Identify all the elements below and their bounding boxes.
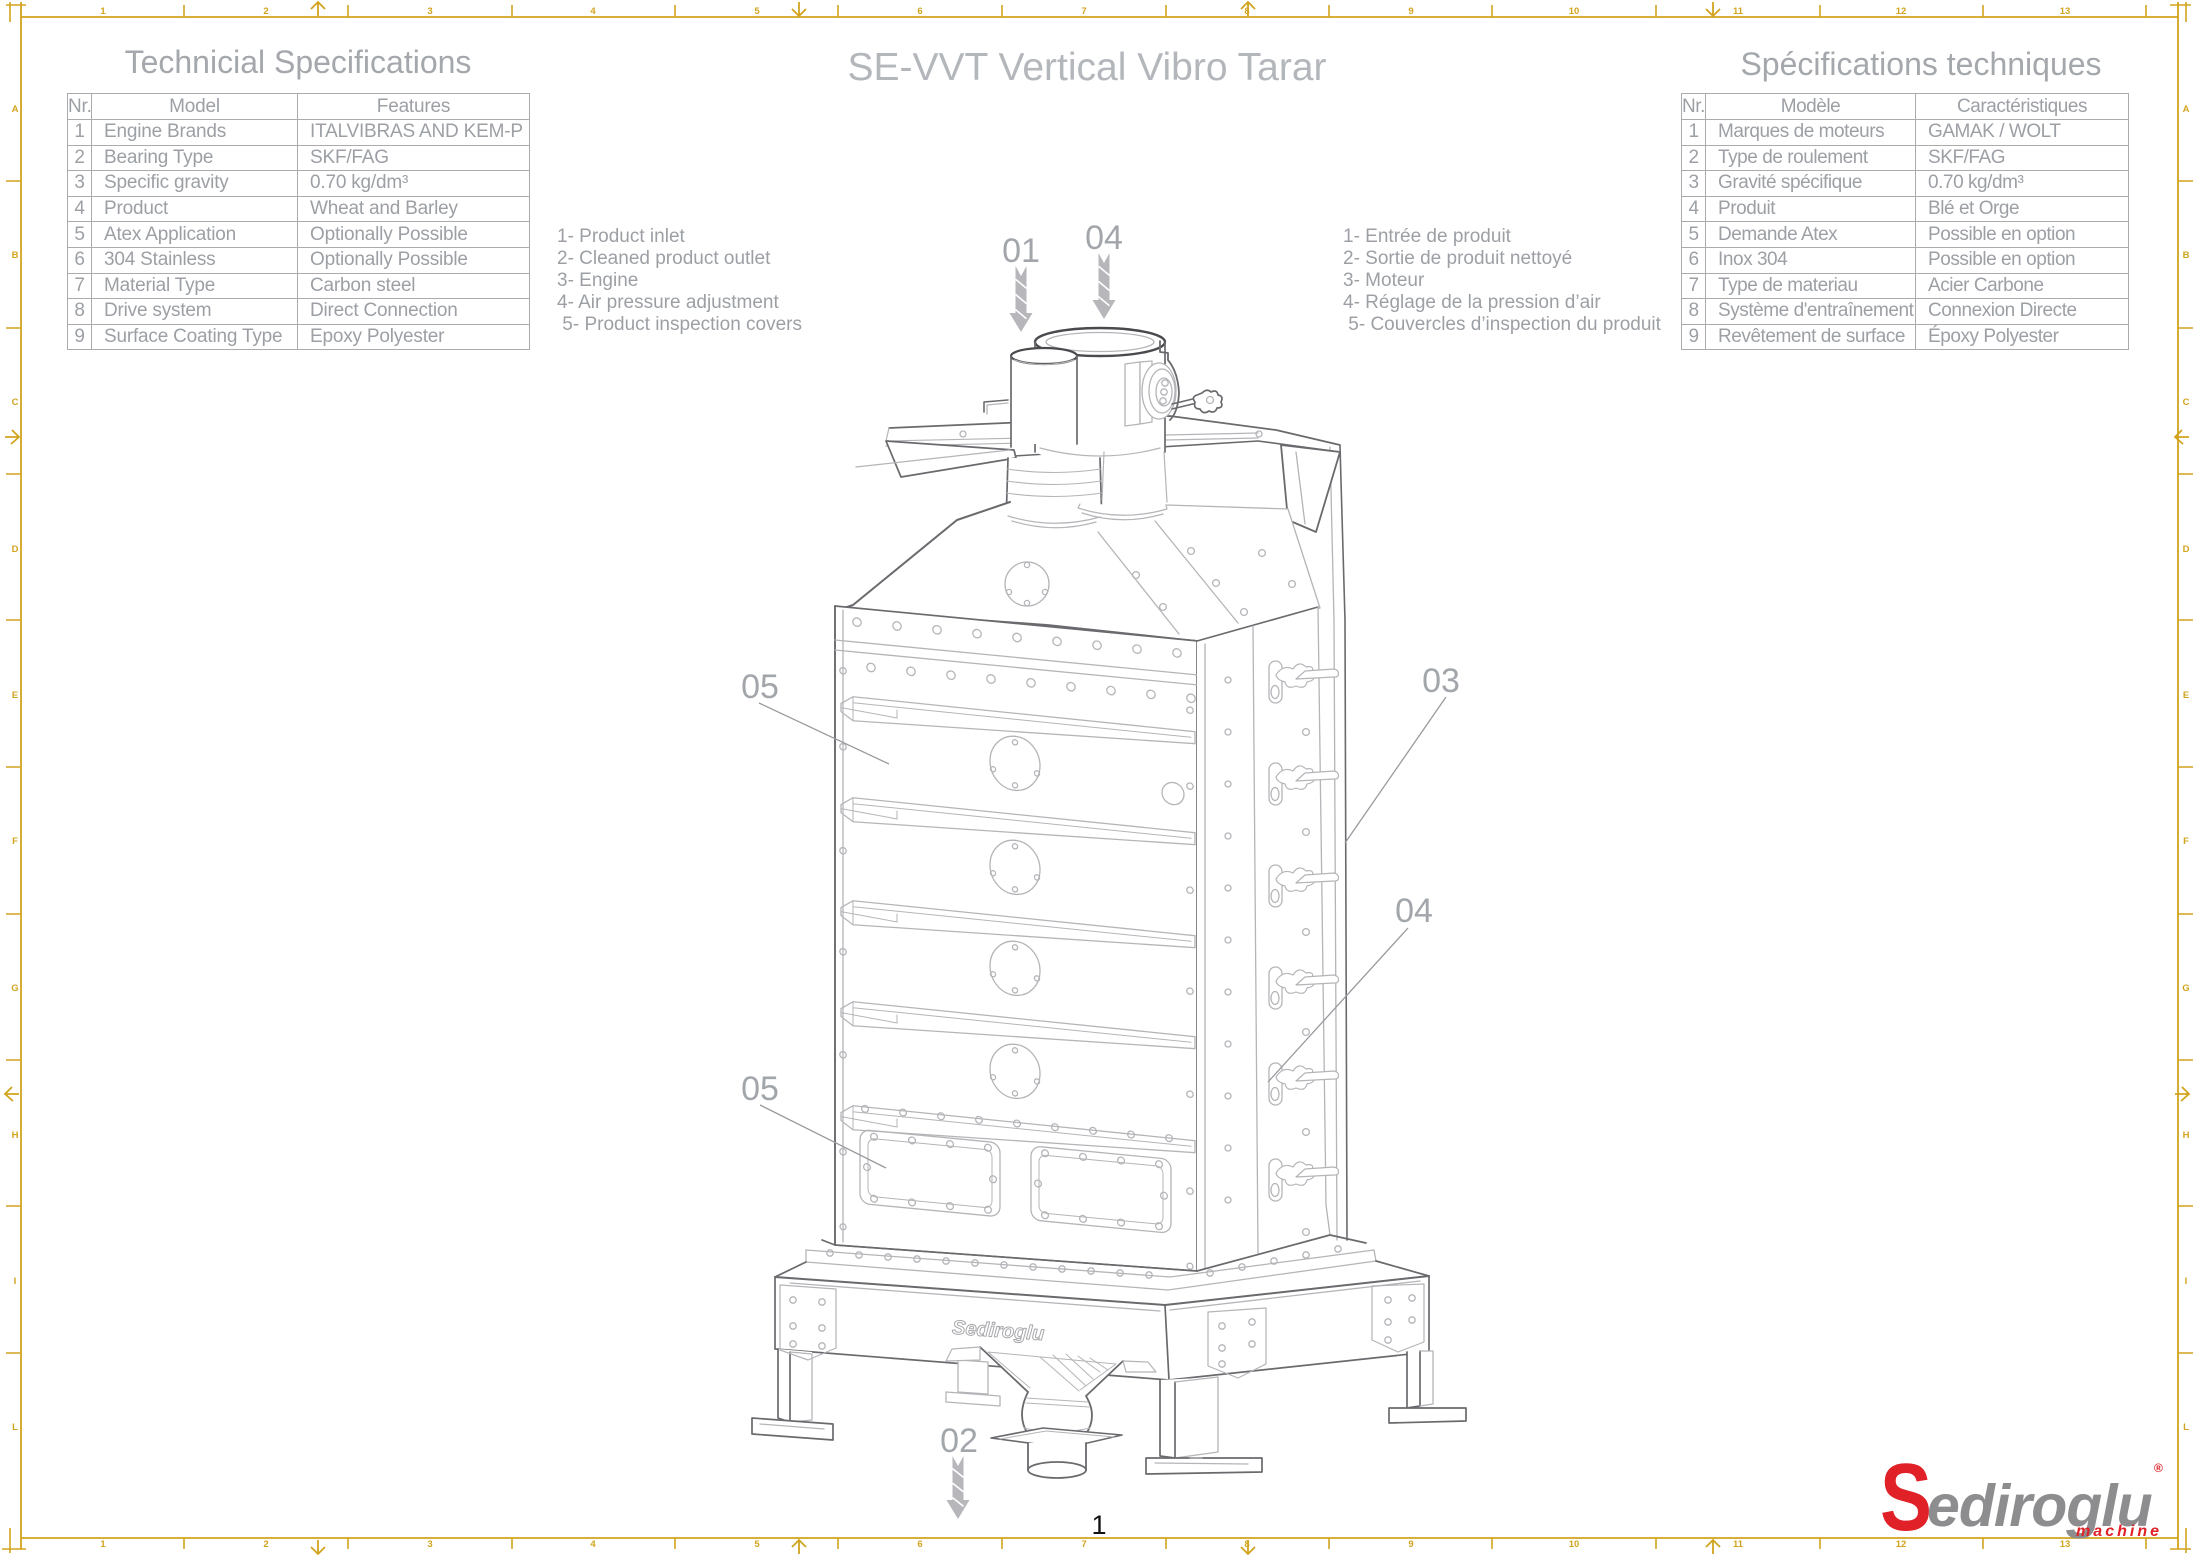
- svg-text:D: D: [12, 544, 19, 555]
- svg-text:03: 03: [1422, 662, 1460, 700]
- svg-text:®: ®: [2154, 1461, 2163, 1475]
- svg-text:10: 10: [1569, 1539, 1580, 1550]
- svg-text:11: 11: [1733, 6, 1744, 17]
- svg-text:9: 9: [1408, 6, 1413, 17]
- svg-text:3: 3: [427, 1539, 432, 1550]
- svg-text:F: F: [2183, 836, 2189, 847]
- svg-text:B: B: [12, 250, 19, 261]
- svg-text:C: C: [12, 397, 19, 408]
- svg-text:01: 01: [1002, 232, 1040, 270]
- svg-text:2: 2: [263, 6, 268, 17]
- svg-text:6: 6: [917, 6, 922, 17]
- svg-text:7: 7: [1081, 6, 1086, 17]
- svg-text:11: 11: [1733, 1539, 1744, 1550]
- svg-text:G: G: [11, 983, 18, 994]
- svg-text:7: 7: [1081, 1539, 1086, 1550]
- svg-text:D: D: [2183, 544, 2190, 555]
- svg-text:2: 2: [263, 1539, 268, 1550]
- svg-text:H: H: [12, 1130, 19, 1141]
- svg-text:12: 12: [1896, 6, 1907, 17]
- svg-text:05: 05: [741, 1070, 779, 1108]
- svg-text:4: 4: [590, 6, 596, 17]
- svg-text:04: 04: [1085, 219, 1123, 257]
- svg-text:H: H: [2183, 1130, 2190, 1141]
- svg-text:C: C: [2183, 397, 2190, 408]
- svg-text:B: B: [2183, 250, 2190, 261]
- svg-text:machine: machine: [2076, 1523, 2162, 1540]
- svg-text:05: 05: [741, 668, 779, 706]
- svg-text:5: 5: [754, 1539, 760, 1550]
- svg-text:L: L: [12, 1422, 18, 1433]
- svg-text:L: L: [2183, 1422, 2189, 1433]
- svg-text:3: 3: [427, 6, 432, 17]
- svg-text:E: E: [2183, 690, 2189, 701]
- svg-text:E: E: [12, 690, 18, 701]
- svg-text:10: 10: [1569, 6, 1580, 17]
- svg-text:4: 4: [590, 1539, 596, 1550]
- svg-text:S: S: [1880, 1450, 1932, 1545]
- svg-text:5: 5: [754, 6, 760, 17]
- svg-text:1: 1: [100, 6, 106, 17]
- svg-text:1: 1: [100, 1539, 106, 1550]
- svg-text:6: 6: [917, 1539, 922, 1550]
- svg-text:G: G: [2182, 983, 2189, 994]
- svg-text:A: A: [12, 104, 19, 115]
- svg-text:I: I: [14, 1276, 17, 1287]
- svg-text:13: 13: [2060, 6, 2071, 17]
- svg-text:A: A: [2183, 104, 2190, 115]
- svg-text:02: 02: [940, 1422, 978, 1460]
- svg-text:I: I: [2185, 1276, 2188, 1287]
- svg-text:F: F: [12, 836, 18, 847]
- svg-text:04: 04: [1395, 892, 1433, 930]
- svg-text:9: 9: [1408, 1539, 1413, 1550]
